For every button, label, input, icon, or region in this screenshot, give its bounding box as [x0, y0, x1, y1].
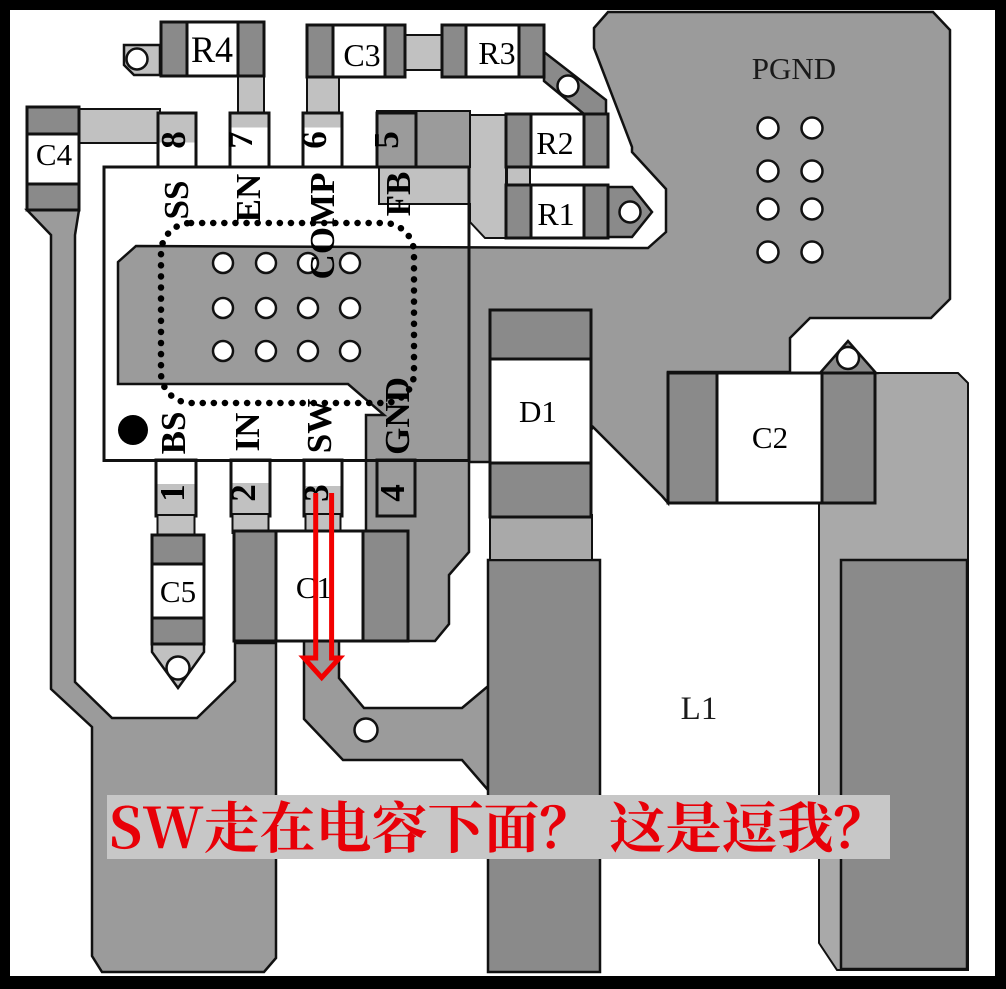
svg-text:COMP: COMP — [303, 173, 342, 280]
svg-text:D1: D1 — [519, 394, 557, 429]
svg-text:R4: R4 — [191, 30, 233, 71]
svg-text:SW: SW — [300, 399, 339, 453]
svg-text:R3: R3 — [478, 35, 515, 71]
svg-text:5: 5 — [367, 131, 406, 149]
svg-text:PGND: PGND — [752, 51, 836, 86]
svg-text:SS: SS — [157, 181, 196, 220]
svg-text:GND: GND — [378, 377, 417, 455]
svg-text:7: 7 — [221, 131, 260, 149]
svg-text:R1: R1 — [537, 196, 574, 232]
svg-text:BS: BS — [154, 412, 193, 455]
svg-text:C2: C2 — [752, 420, 788, 455]
svg-text:C3: C3 — [343, 37, 380, 73]
svg-text:1: 1 — [153, 484, 192, 502]
svg-text:4: 4 — [373, 484, 412, 502]
svg-text:C4: C4 — [36, 137, 73, 172]
svg-text:L1: L1 — [681, 691, 718, 727]
svg-text:2: 2 — [224, 484, 263, 502]
svg-text:8: 8 — [154, 131, 193, 149]
svg-text:FB: FB — [379, 172, 418, 217]
svg-text:EN: EN — [229, 174, 268, 223]
svg-text:6: 6 — [295, 131, 334, 149]
svg-text:R2: R2 — [536, 125, 573, 161]
svg-text:C5: C5 — [160, 574, 196, 609]
svg-text:IN: IN — [228, 413, 267, 452]
